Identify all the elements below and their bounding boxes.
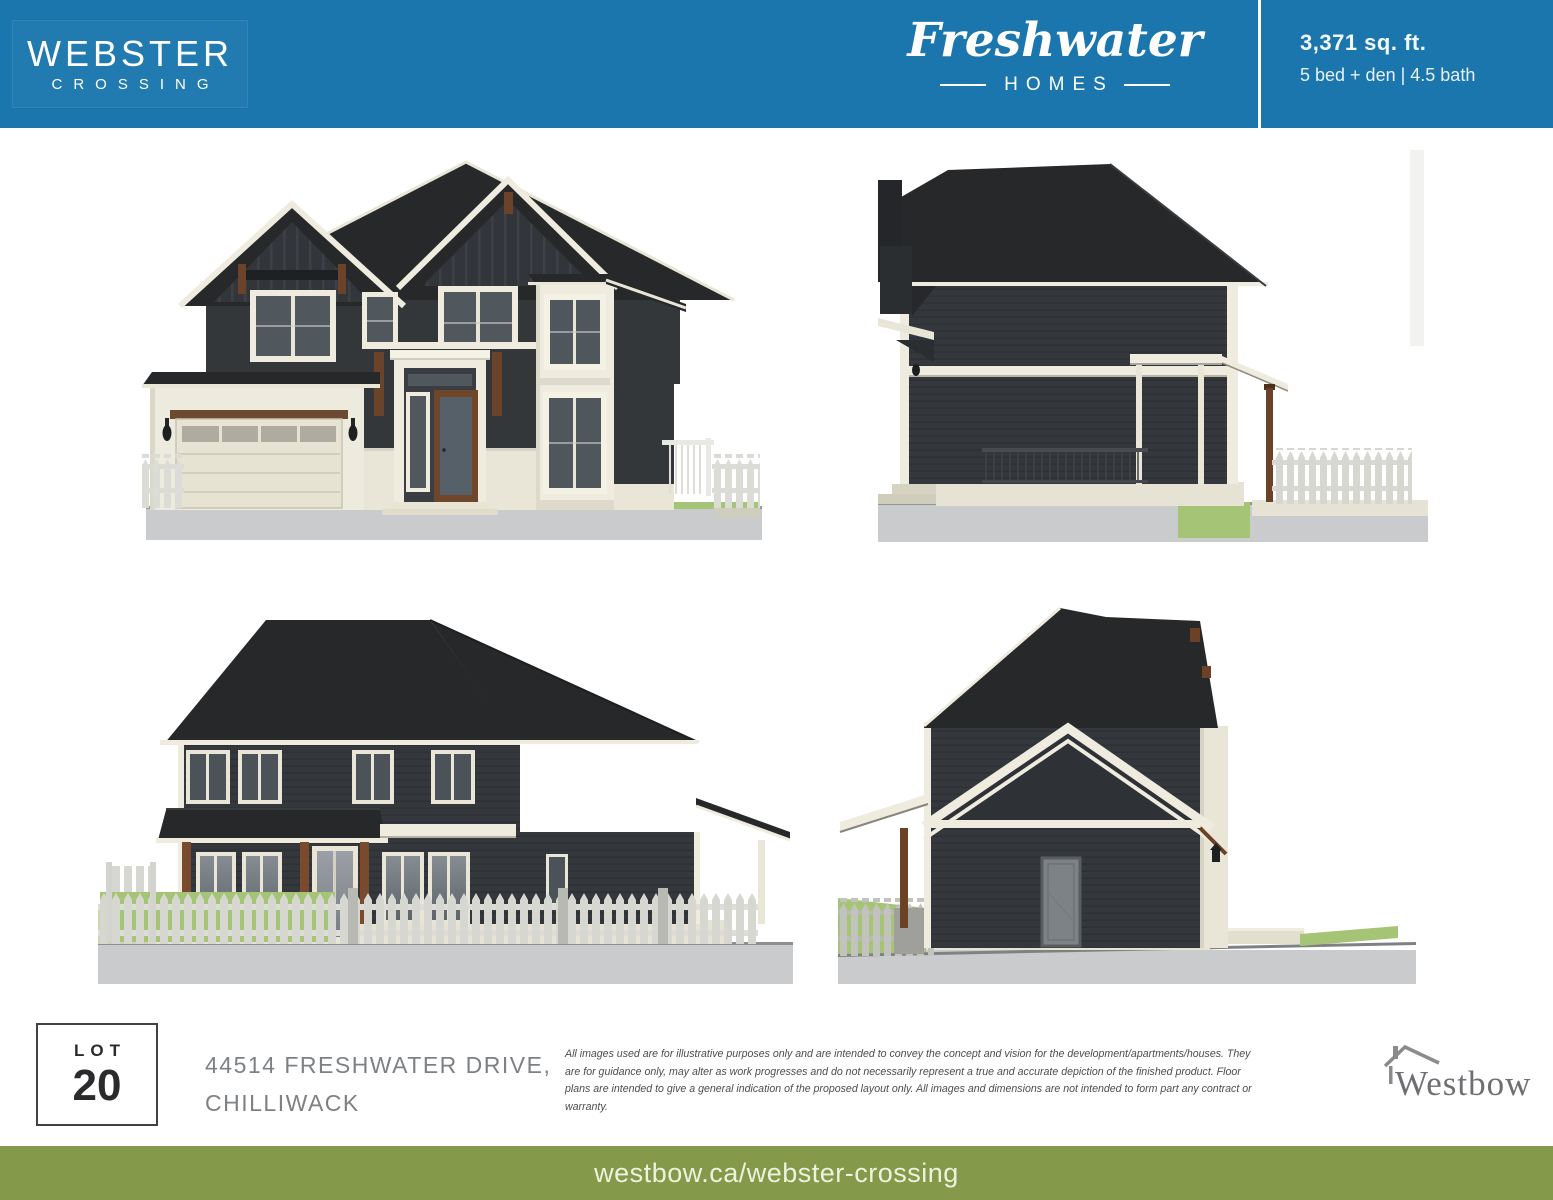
property-address: 44514 FRESHWATER DRIVE, CHILLIWACK [205,1046,551,1122]
footer-bar: westbow.ca/webster-crossing [0,1146,1553,1200]
left-yard [838,898,934,956]
floor-trim [928,820,1200,828]
builder-subtitle-row: HOMES [890,74,1220,96]
elevation-side-right [878,150,1428,542]
entry-door [382,350,498,515]
builder-subtitle: HOMES [996,74,1114,96]
elevation-side-right-rendering [878,150,1428,547]
foundation [936,482,1244,506]
elevation-front [140,158,768,546]
header-divider [1258,0,1261,131]
porch-post [1266,388,1273,502]
square-footage: 3,371 sq. ft. [1300,30,1475,56]
garage-door [176,419,342,508]
upper-left-window [250,290,336,362]
main-roof [924,608,1218,728]
right-rule [1124,84,1170,86]
elevation-side-left-rendering [838,592,1416,989]
upper-center-window [362,292,398,350]
porch-railing [662,438,714,496]
side-wall [900,282,1238,484]
bed-bath-config: 5 bed + den | 4.5 bath [1300,65,1475,86]
brochure-page: WEBSTER CROSSING Freshwater HOMES 3,371 … [0,0,1553,1200]
elevation-rear [98,592,793,984]
westbow-logo: Westbow [1381,1030,1531,1110]
address-line1: 44514 FRESHWATER DRIVE, [205,1046,551,1084]
ground [878,500,1428,542]
website-url: westbow.ca/webster-crossing [594,1158,959,1189]
westbow-wordmark: Westbow [1395,1064,1531,1104]
lot-number: 20 [73,1063,122,1109]
side-door [1042,858,1080,946]
address-line2: CHILLIWACK [205,1084,551,1122]
picket-fence-left [142,454,184,508]
page-edge-strip [1410,150,1424,346]
left-rule [940,84,986,86]
lantern [912,364,920,376]
builder-script-wordmark: Freshwater [890,10,1220,72]
lot-badge: LOT 20 [36,1023,158,1126]
freshwater-homes-logo: Freshwater HOMES [890,10,1220,120]
elevation-rear-rendering [98,592,793,989]
picket-fence-right [712,454,760,518]
community-subname: CROSSING [40,76,219,93]
webster-crossing-logo: WEBSTER CROSSING [12,20,248,108]
lot-label: LOT [68,1041,126,1061]
legal-disclaimer: All images used are for illustrative pur… [565,1046,1253,1116]
home-specs: 3,371 sq. ft. 5 bed + den | 4.5 bath [1300,30,1475,86]
hip-roof [160,620,698,745]
lantern [1212,850,1220,862]
porch-post [900,828,908,928]
window-bay [528,274,622,510]
picket-fence [1272,448,1412,504]
header-bar: WEBSTER CROSSING Freshwater HOMES 3,371 … [0,0,1553,128]
elevation-side-left [838,592,1416,984]
right-wing [606,276,686,510]
elevation-front-rendering [140,158,768,551]
community-name: WEBSTER [27,35,233,73]
